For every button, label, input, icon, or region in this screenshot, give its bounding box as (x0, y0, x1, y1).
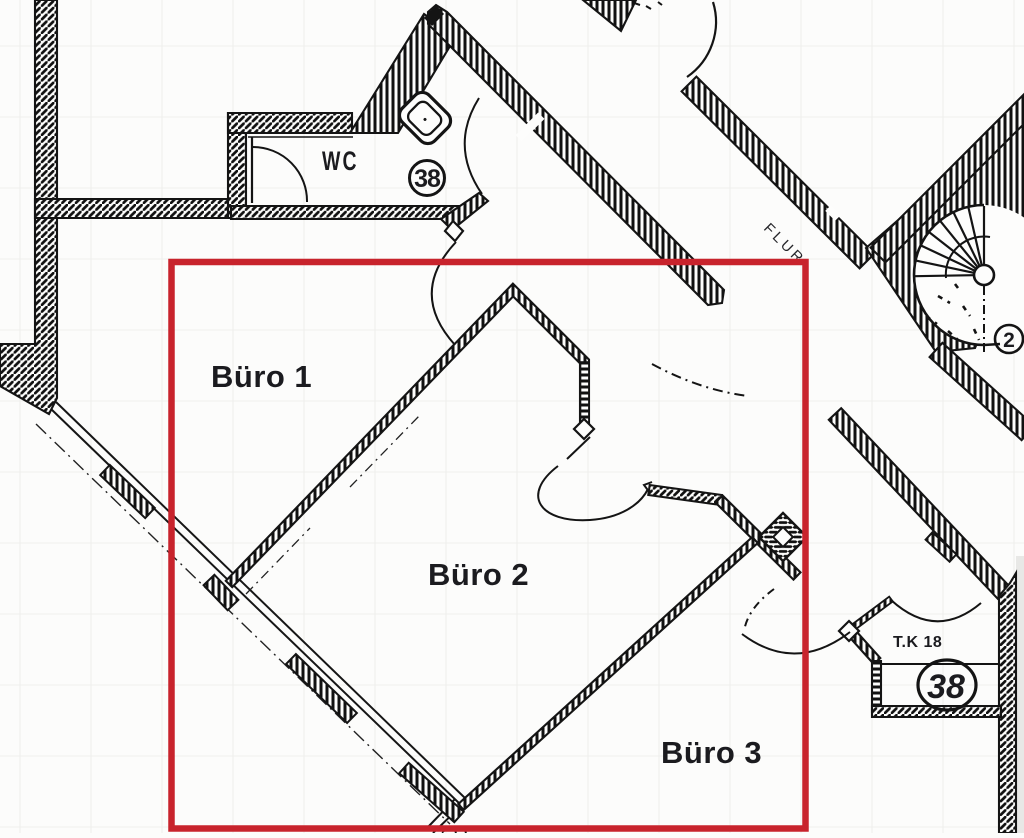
svg-text:WC: WC (322, 146, 359, 176)
svg-text:38: 38 (414, 165, 441, 193)
svg-text:2: 2 (1003, 329, 1015, 352)
svg-text:Büro 1: Büro 1 (211, 359, 312, 394)
svg-text:38: 38 (927, 668, 965, 706)
svg-text:Büro 3: Büro 3 (661, 735, 762, 770)
svg-text:Büro 2: Büro 2 (428, 557, 529, 592)
svg-text:T.K 18: T.K 18 (893, 634, 942, 651)
